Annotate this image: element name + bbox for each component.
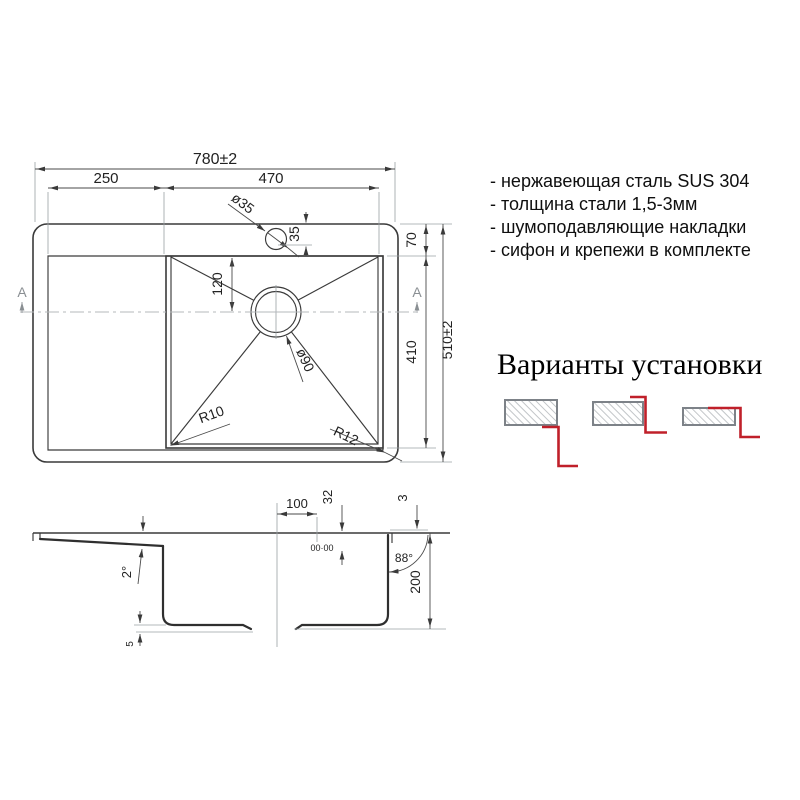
dim-label: 100 [286,496,308,511]
dim-pad-height: 5 [125,611,166,647]
dim-bowl-depth: 200 [407,533,430,629]
dim-label: 510±2 [439,320,455,359]
section-marker-right: A [412,284,422,300]
dim-drain-diameter: ø90 [287,336,318,382]
dim-wing-slope: 2° [119,516,143,584]
dim-label: ø90 [293,346,318,375]
sink-drawing-page: A A 780±2 250 470 [0,0,800,800]
dim-label: 3 [395,494,410,501]
install-option-3 [683,408,760,437]
dim-drain-offset: 100 [277,496,317,542]
dim-drain-from-top: 120 [209,258,232,311]
dim-faucet-offset: 35 [278,212,312,256]
dim-label: 200 [407,570,423,594]
dim-label: 2° [119,566,134,578]
dim-label: 32 [320,490,335,504]
countertop-hatch [505,400,557,425]
dim-overall-width: 780±2 [35,151,395,222]
dim-label: 5 [125,641,136,647]
top-view: A A 780±2 250 470 [17,151,455,462]
feature-list: - нержавеющая сталь SUS 304 - толщина ст… [490,170,790,262]
dim-label: 70 [403,232,419,248]
dim-wing-bowl-width: 250 470 [48,170,379,254]
mount-profile-red [542,427,578,466]
countertop-hatch [683,408,735,425]
dim-drain-depth: 32 [320,490,342,565]
install-option-1 [505,400,578,466]
dim-label: 35 [286,226,302,242]
dim-label: 780±2 [193,151,237,168]
feature-item: - шумоподавляющие накладки [490,216,790,239]
section-profile [33,533,392,629]
technical-drawing: A A 780±2 250 470 [0,0,800,800]
install-options [505,397,760,466]
drain-fitting-mark: 00·00 [310,543,333,553]
dim-corner-radii: R10 R12 [171,402,403,461]
dim-label: 250 [93,170,118,187]
dim-label: ø35 [229,189,258,216]
feature-item: - сифон и крепежи в комплекте [490,239,790,262]
section-view: 100 00·00 32 3 88° 200 [33,490,450,647]
dim-label: 470 [258,170,283,187]
feature-item: - толщина стали 1,5-3мм [490,193,790,216]
dim-label: 410 [403,340,419,364]
dim-label: 88° [395,551,413,565]
install-options-title: Варианты установки [497,348,797,382]
install-option-2 [593,397,667,433]
dim-wall-angle: 88° [389,535,428,572]
feature-item: - нержавеющая сталь SUS 304 [490,170,790,193]
countertop-hatch [593,402,643,425]
dim-label: 120 [209,272,225,296]
dim-rim-height: 3 [390,494,428,530]
dim-faucet-diameter: ø35 [228,189,299,257]
section-marker-left: A [17,284,27,300]
